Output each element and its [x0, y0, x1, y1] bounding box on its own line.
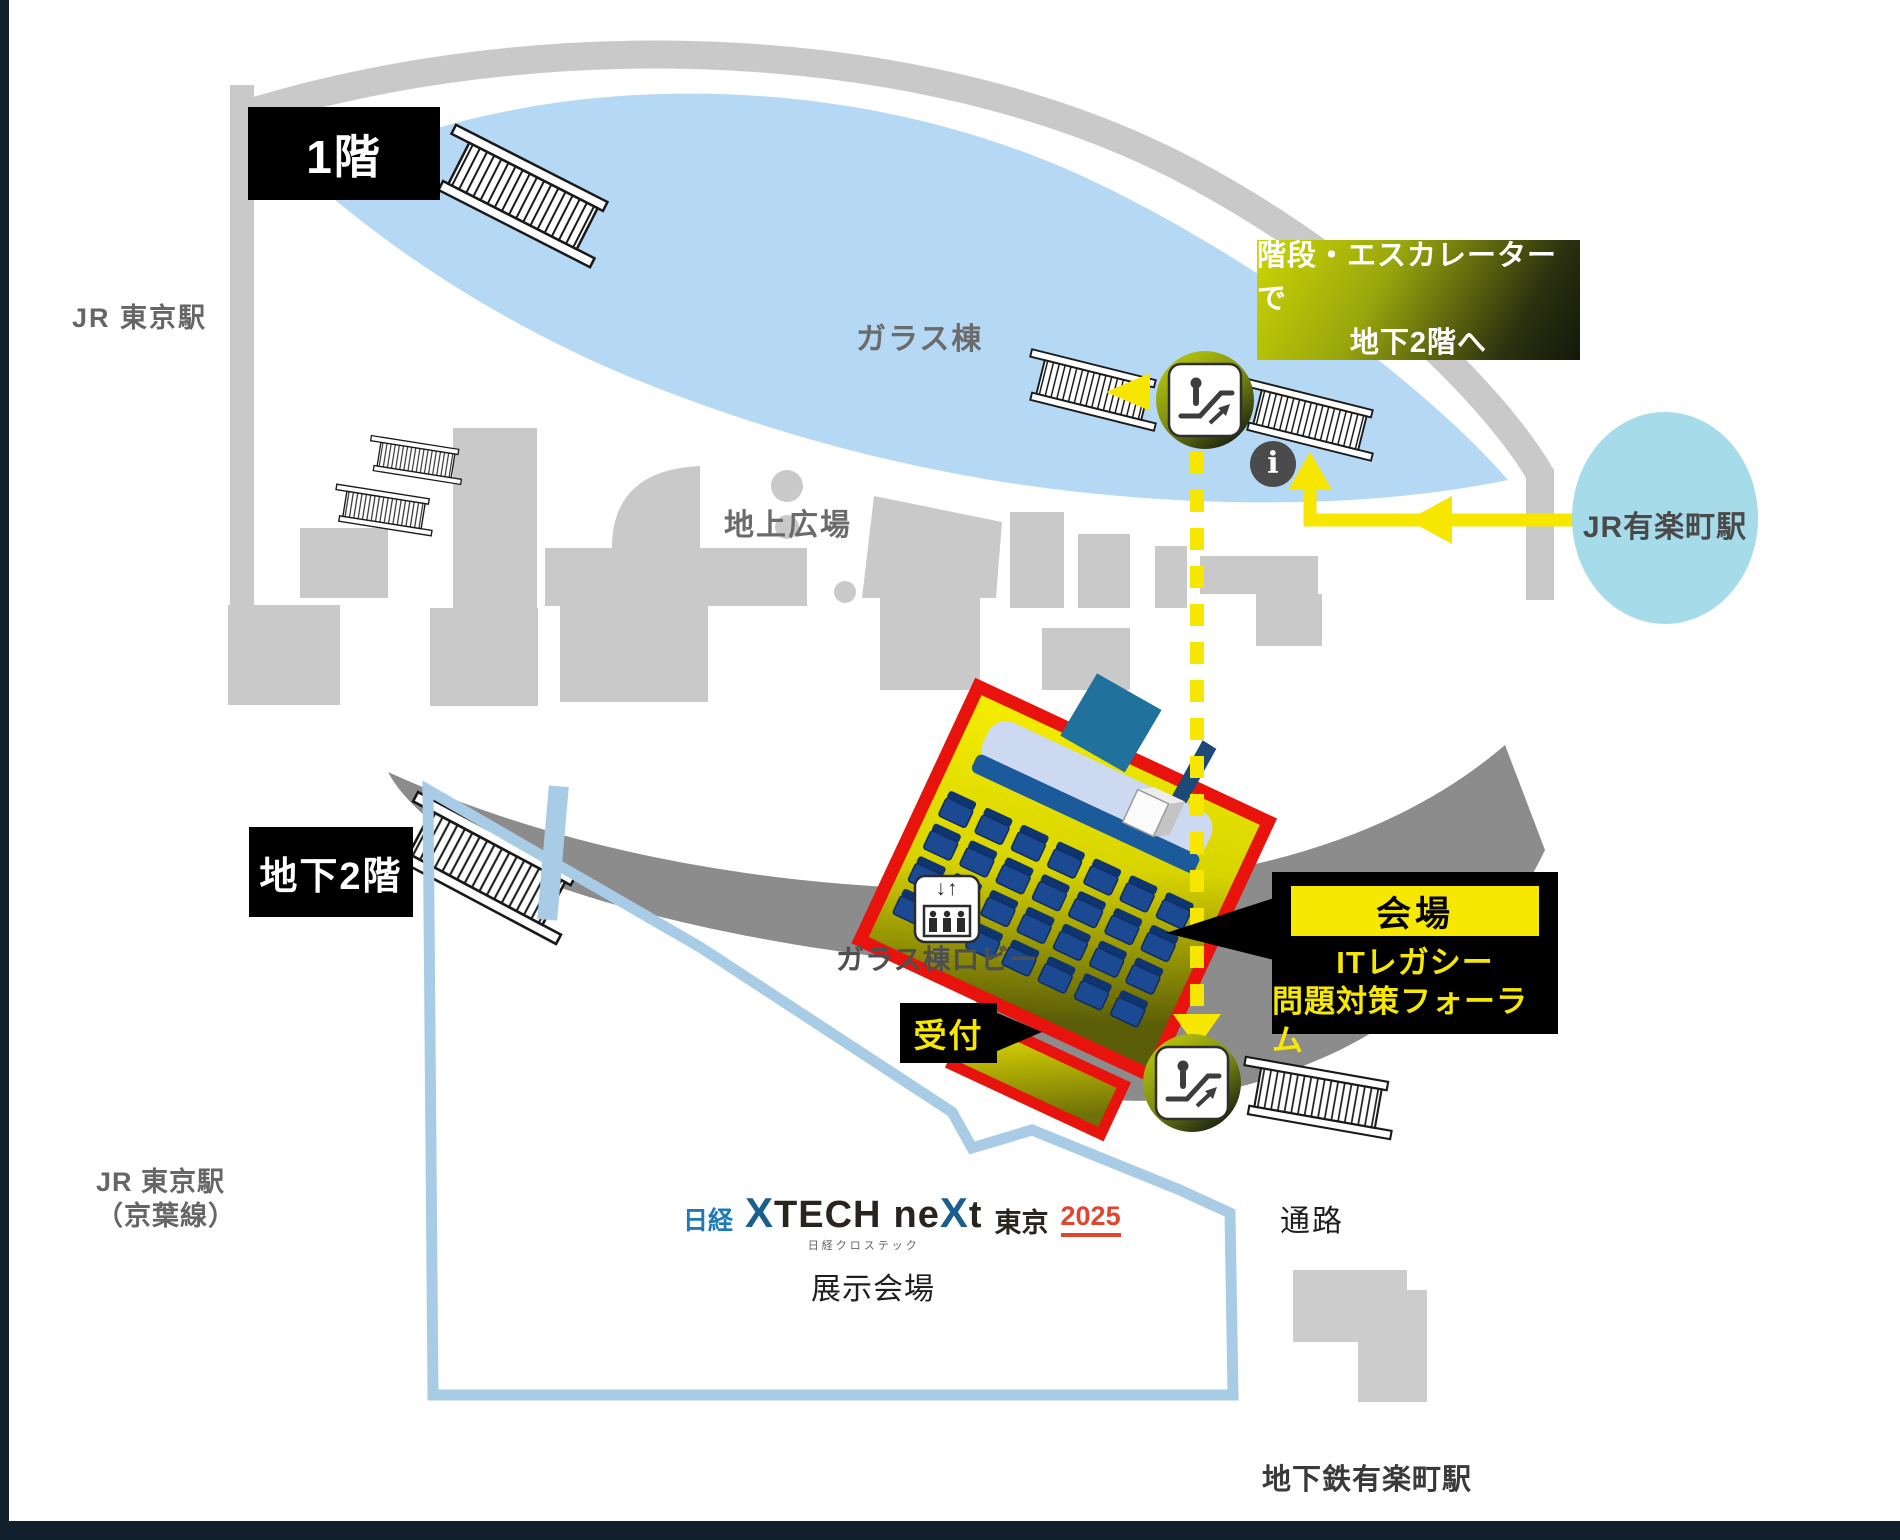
elevator-arrows-icon: ↓↑ [915, 877, 979, 901]
jr-tokyo-keiyo-line1: JR 東京駅 [96, 1166, 236, 1200]
logo-year: 2025 [1061, 1201, 1121, 1237]
escalator-icon [1143, 1034, 1241, 1132]
bottom-bar [0, 1521, 1900, 1540]
venue-event-line2: 問題対策フォーラム [1272, 983, 1558, 1061]
passage-label: 通路 [1280, 1196, 1344, 1240]
route-arrow-left-icon [1408, 496, 1452, 544]
subway-yurakucho-label: 地下鉄有楽町駅 [1262, 1456, 1472, 1498]
logo-city: 東京 [995, 1201, 1049, 1240]
logo-nikkei: 日経 [683, 1201, 733, 1237]
passage-block [1293, 1270, 1427, 1402]
left-frame-line [0, 0, 9, 1540]
logo-subtitle: 日経クロステック [808, 1237, 920, 1253]
jr-tokyo-keiyo-label: JR 東京駅 （京葉線） [96, 1166, 236, 1234]
route-note-line1: 階段・エスカレーターで [1257, 235, 1580, 322]
glass-lobby-label: ガラス棟ロビー [836, 938, 1038, 978]
jr-tokyo-keiyo-line2: （京葉線） [96, 1200, 236, 1234]
nikkei-xtech-logo: 日経 XTECHneXt 日経クロステック 東京 2025 [683, 1192, 1121, 1253]
venue-event-line1: ITレガシー [1336, 944, 1494, 983]
floor1-label-box: 1階 [248, 107, 440, 200]
logo-xtech-next: XTECHneXt [745, 1192, 983, 1234]
info-icon-glyph: i [1250, 441, 1296, 487]
escalator-icon [1156, 351, 1254, 449]
reception-label: 受付 [914, 1009, 984, 1057]
venue-callout: 会場 ITレガシー 問題対策フォーラム [1272, 872, 1558, 1034]
floor-b2-label-box: 地下2階 [249, 827, 413, 917]
access-map: 1階 地下2階 JR 東京駅 ガラス棟 地上広場 階段・エスカレーターで 地下2… [0, 0, 1900, 1540]
route-note-box: 階段・エスカレーターで 地下2階へ [1257, 240, 1580, 360]
route-note-line2: 地下2階へ [1350, 322, 1487, 366]
jr-yurakucho-label: JR有楽町駅 [1571, 502, 1759, 546]
floor1-label: 1階 [306, 121, 382, 187]
reception-callout: 受付 [900, 1003, 997, 1063]
venue-label: 会場 [1291, 886, 1539, 936]
floor-b2-label: 地下2階 [259, 845, 402, 900]
map-graphics [0, 0, 1900, 1540]
jr-tokyo-label: JR 東京駅 [72, 296, 207, 335]
glass-tower-label: ガラス棟 [856, 314, 983, 358]
exhibition-hall-label: 展示会場 [811, 1264, 935, 1308]
ground-plaza-label: 地上広場 [724, 500, 852, 544]
